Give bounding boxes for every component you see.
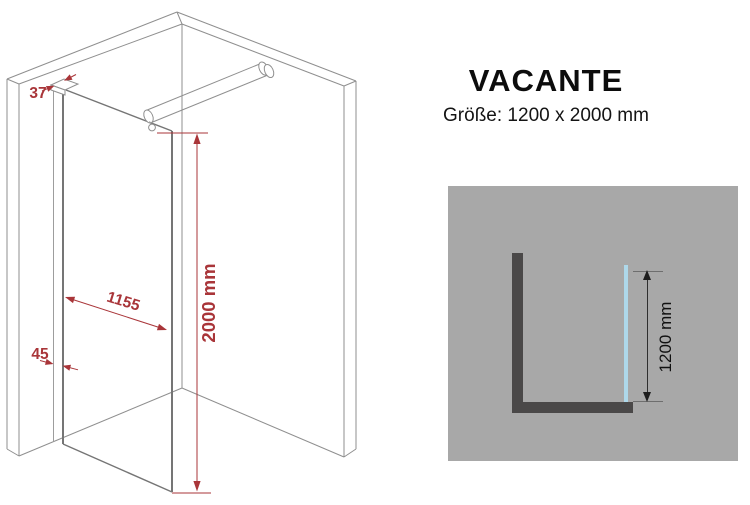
iso-drawing: 2000 mm 1155 45 (0, 0, 430, 505)
dimension-line (647, 274, 648, 398)
product-size-label: Größe: 1200 x 2000 mm (433, 104, 659, 128)
room-corner-walls (7, 12, 356, 457)
top-view-wall-vertical (512, 253, 523, 413)
dimension-profile-width: 45 (31, 346, 78, 371)
dimension-wall-gap-label: 37 (29, 85, 46, 102)
dimension-profile-width-label: 45 (31, 346, 49, 363)
top-view-width-label: 1200 mm (656, 267, 676, 407)
product-dimension-sheet: 2000 mm 1155 45 (0, 0, 750, 505)
product-title: VACANTE (433, 64, 659, 98)
dimension-arrow-up-icon (643, 270, 651, 280)
dimension-glass-width: 1155 (65, 289, 167, 331)
dimension-glass-width-label: 1155 (105, 289, 142, 315)
title-block: VACANTE Größe: 1200 x 2000 mm (433, 64, 659, 128)
top-view-panel: 1200 mm (448, 186, 738, 461)
dimension-annotations: 2000 mm 1155 45 (29, 74, 219, 493)
dimension-arrow-down-icon (643, 392, 651, 402)
dimension-height: 2000 mm (157, 133, 219, 493)
top-view-wall-horizontal (512, 402, 633, 413)
stabilizer-bar (142, 60, 276, 130)
dimension-height-label: 2000 mm (198, 263, 219, 342)
top-view-glass-panel (624, 265, 628, 402)
